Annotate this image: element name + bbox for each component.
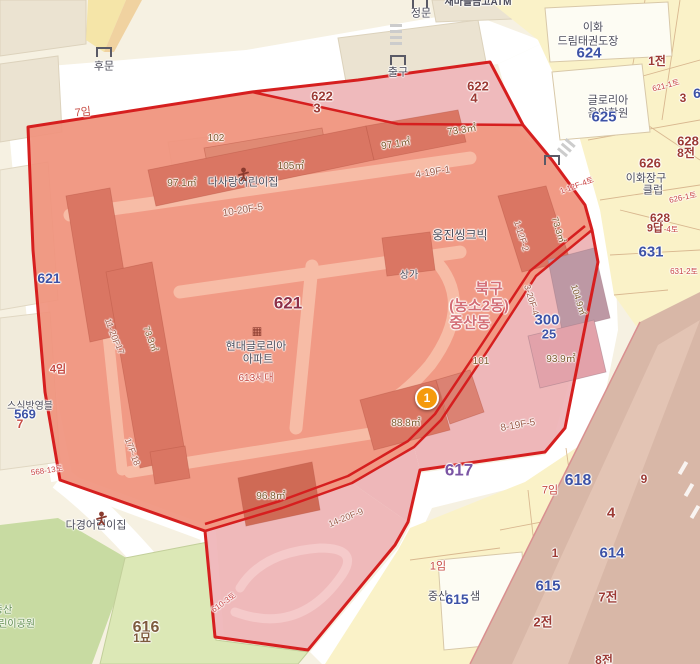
map-label: 631 xyxy=(638,245,663,260)
gate-icon xyxy=(96,47,112,57)
map-label: 이화장구 xyxy=(626,174,666,185)
map-label: 93.9㎡ xyxy=(546,355,575,365)
map-label: 617 xyxy=(445,462,473,479)
map-label: 후문 xyxy=(94,62,114,73)
map-label: 정문 xyxy=(411,9,431,20)
map-label: 97.1㎡ xyxy=(167,179,196,189)
map-label: 9 xyxy=(641,473,648,485)
map-label: 7임 xyxy=(74,107,91,120)
map-label: 4 xyxy=(470,92,477,105)
map-canvas[interactable]: 1 새마을금고ATM후문정문출구7임62236224이화드림태권도장6241전글… xyxy=(0,0,700,664)
map-label: 9답 xyxy=(647,224,663,235)
gate-icon xyxy=(412,0,428,8)
map-label: 102 xyxy=(208,134,225,144)
map-label: 3 xyxy=(680,92,687,104)
gate-icon xyxy=(544,155,560,165)
map-label: 624 xyxy=(576,46,601,61)
map-label: 새마을금고ATM xyxy=(445,0,512,8)
map-label: 3 xyxy=(313,102,320,115)
map-label: 614 xyxy=(599,546,624,561)
map-label: 4임 xyxy=(50,365,66,376)
map-label: 621 xyxy=(37,271,60,285)
apartment-icon: ▦ xyxy=(252,325,262,338)
map-label: 8전 xyxy=(595,654,613,664)
map-label: 101 xyxy=(473,357,490,367)
map-label: 북구 xyxy=(475,282,503,297)
map-label: 클럽 xyxy=(643,186,663,197)
map-label: 4 xyxy=(607,506,615,521)
map-label: 1 xyxy=(552,547,559,559)
map-label: 626 xyxy=(639,157,661,170)
map-label: 상가 xyxy=(400,271,418,281)
map-label: 25 xyxy=(542,328,556,341)
map-label: 7임 xyxy=(542,486,558,497)
map-label: 중산동 xyxy=(449,316,490,331)
map-label: 웅진씽크빅 xyxy=(432,229,487,241)
map-label: 625 xyxy=(591,110,616,125)
map-label: 7전 xyxy=(598,591,617,604)
map-label: 샘 xyxy=(470,592,480,603)
map-label: 1전 xyxy=(648,55,666,67)
map-label: 8전 xyxy=(677,147,695,159)
map-label: 105㎡ xyxy=(278,162,305,172)
map-label: 글로리아 xyxy=(588,96,628,107)
map-label: (농소2동) xyxy=(449,299,509,314)
map-label: 아파트 xyxy=(243,355,273,366)
map-label: 2전 xyxy=(533,616,552,629)
map-label: 어린이공원 xyxy=(0,620,35,630)
map-label: 출구 xyxy=(388,68,408,79)
map-label: 621 xyxy=(274,295,302,312)
map-label: 618 xyxy=(565,473,592,489)
map-label: 6 xyxy=(693,86,700,100)
map-label: 이화 xyxy=(583,23,603,34)
map-label: 1임 xyxy=(430,562,446,573)
map-label: 현대글로리아 xyxy=(226,342,287,353)
map-label: 88.8㎡ xyxy=(391,419,420,429)
map-label: 중산 xyxy=(0,606,12,616)
map-label: 613세대 xyxy=(238,374,273,384)
map-label: 96.8㎡ xyxy=(256,492,285,502)
map-marker-1[interactable]: 1 xyxy=(415,386,439,410)
map-label: 300 xyxy=(534,313,559,328)
map-label: 1묘 xyxy=(133,632,151,644)
gate-icon xyxy=(390,55,406,65)
map-label: 615 xyxy=(445,592,468,606)
map-label: 631-2토 xyxy=(670,268,698,276)
map-label: 615 xyxy=(535,579,560,594)
map-label: -4토 xyxy=(664,226,678,234)
map-label: 7 xyxy=(17,418,24,430)
